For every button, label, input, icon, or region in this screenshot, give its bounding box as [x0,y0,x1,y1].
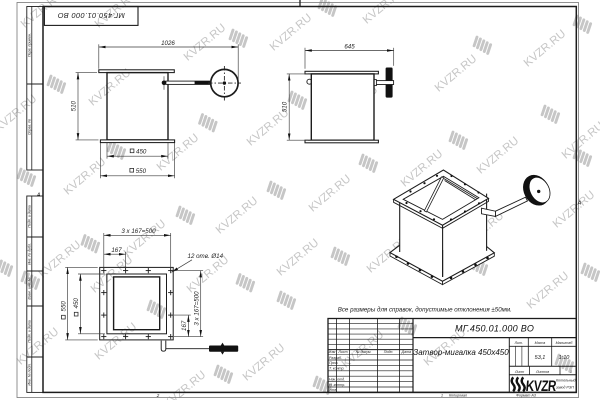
svg-text:167: 167 [181,320,188,331]
svg-text:12 отв. Ø14: 12 отв. Ø14 [188,253,224,260]
svg-text:завод РЭП: завод РЭП [555,385,574,389]
svg-text:Листов: Листов [535,370,549,374]
svg-text:KVZR: KVZR [525,377,557,394]
svg-text:Подп. и дата: Подп. и дата [28,205,32,228]
svg-text:Дата: Дата [401,350,411,354]
svg-text:3 х 167=500: 3 х 167=500 [193,291,200,326]
svg-text:Лит.: Лит. [514,341,523,345]
svg-text:167: 167 [111,247,122,254]
svg-text:Изм: Изм [329,350,336,354]
svg-text:1026: 1026 [161,40,175,47]
svg-text:Масштаб: Масштаб [556,341,574,345]
svg-text:Справ. №: Справ. № [28,119,32,135]
svg-text:1: 1 [570,370,572,374]
svg-text:1: 1 [441,394,443,398]
svg-text:Перв. примен.: Перв. примен. [28,33,32,57]
svg-text:53,1: 53,1 [535,355,546,361]
svg-text:Разраб.: Разраб. [329,356,342,360]
svg-text:2: 2 [156,393,160,398]
svg-text:Формат А3: Формат А3 [516,394,536,398]
svg-text:А: А [577,201,582,207]
svg-text:Масса: Масса [535,341,546,345]
svg-text:Пров.: Пров. [329,361,338,365]
svg-text:Инв. № подл.: Инв. № подл. [28,363,32,385]
svg-text:645: 645 [344,43,355,50]
svg-text:МГ.450.01.000 ВО: МГ.450.01.000 ВО [455,324,534,334]
svg-text:Н. контр.: Н. контр. [329,383,345,387]
svg-text:510: 510 [71,100,78,111]
svg-text:3 х 167=500: 3 х 167=500 [121,228,156,235]
svg-text:№ докум.: № докум. [356,350,372,354]
svg-text:МГ.450.01.000 ВО: МГ.450.01.000 ВО [57,11,124,20]
svg-text:Т. контр.: Т. контр. [329,367,345,371]
svg-text:А: А [36,193,41,199]
svg-text:450: 450 [136,148,147,155]
svg-text:Лист: Лист [514,370,524,374]
svg-text:Нач. отд.: Нач. отд. [329,377,345,381]
svg-text:550: 550 [60,301,67,312]
svg-text:550: 550 [136,168,147,175]
svg-text:450: 450 [73,298,80,309]
svg-text:Котельный: Котельный [556,379,576,383]
svg-text:Подп. и дата: Подп. и дата [28,320,32,343]
svg-text:Взам. инв. №: Взам. инв. № [28,277,32,299]
svg-text:1:10: 1:10 [559,355,571,361]
svg-text:510: 510 [282,101,289,112]
svg-text:Подп.: Подп. [384,350,394,354]
svg-text:Затвор-мигалка 450х450: Затвор-мигалка 450х450 [413,348,509,357]
svg-text:Лист: Лист [337,350,347,354]
svg-text:Копировал: Копировал [449,394,467,398]
svg-text:Утв.: Утв. [329,388,337,392]
svg-text:Инв. № дубл.: Инв. № дубл. [28,243,32,265]
svg-text:Все размеры для справок, допус: Все размеры для справок, допустимые откл… [338,307,512,314]
